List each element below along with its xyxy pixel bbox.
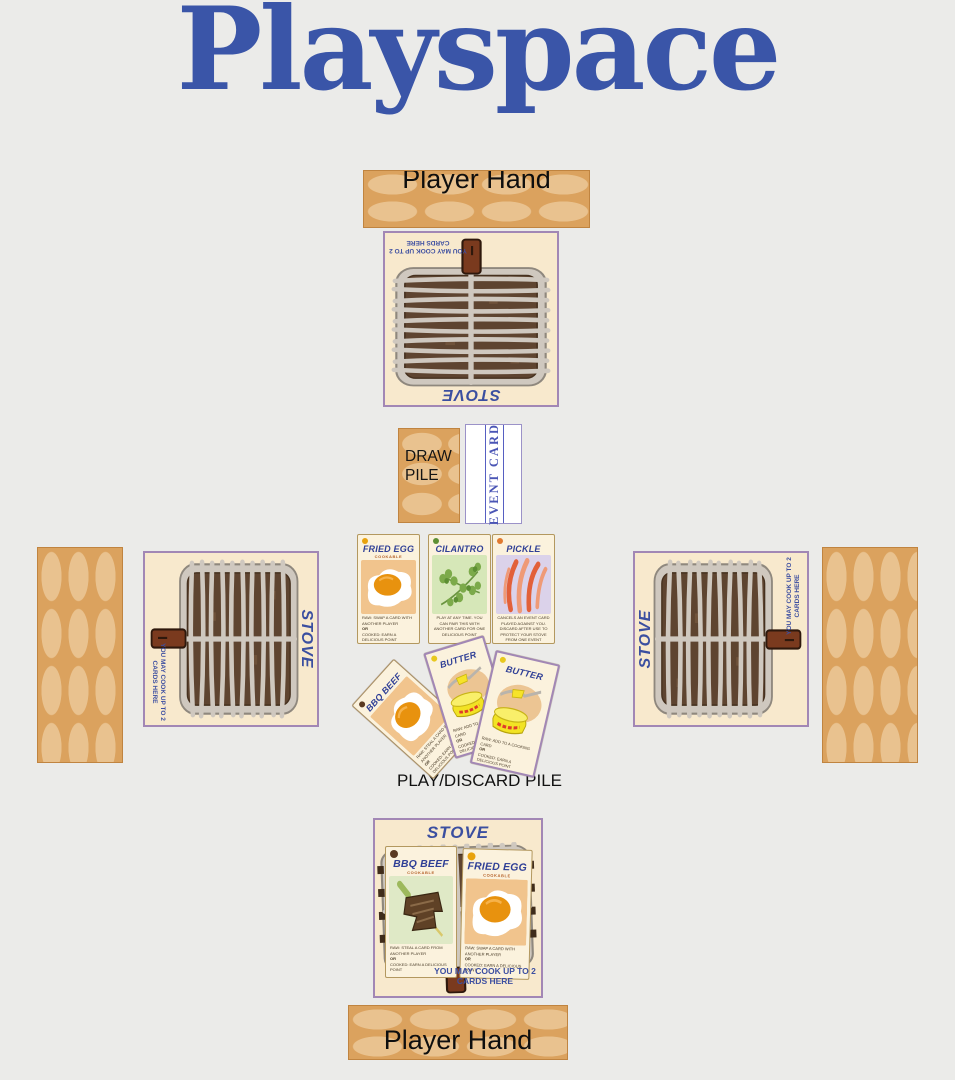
player-hand-top-label: Player Hand — [364, 170, 589, 195]
event-card-label: EVENT CARD — [487, 423, 502, 525]
card-fried-egg[interactable]: FRIED EGG COOKABLE RAW: SWAP A CARD WITH… — [357, 534, 420, 644]
stove-card-right: STOVE YOU MAY COOK UP TO 2 CARDS HERE — [633, 551, 809, 727]
stove-zone-left[interactable]: STOVE YOU MAY COOK UP TO 2 CARDS HERE — [143, 551, 319, 727]
fried-egg-illustration — [361, 560, 416, 614]
pickle-illustration — [496, 555, 551, 614]
grill-illustration — [649, 559, 805, 719]
beef-icon — [390, 850, 398, 858]
page-title: Playspace — [0, 0, 955, 116]
card-fried-egg[interactable]: FRIED EGG COOKABLE RAW: SWAP A CARD WITH… — [459, 848, 532, 980]
card-bbq-beef[interactable]: BBQ BEEF COOKABLE RAW: STEAL A CARD FROM… — [385, 846, 457, 978]
card-title: CILANTRO — [432, 544, 487, 554]
stove-card-left: STOVE YOU MAY COOK UP TO 2 CARDS HERE — [143, 551, 319, 727]
card-subtitle: COOKABLE — [361, 554, 416, 559]
player-hand-bottom[interactable]: Player Hand — [348, 1005, 568, 1060]
bbq-beef-illustration — [389, 876, 453, 944]
card-title: PICKLE — [496, 544, 551, 554]
discard-pile-label: PLAY/DISCARD PILE — [337, 771, 622, 791]
player-hand-right[interactable] — [822, 547, 918, 763]
player-hand-left[interactable] — [37, 547, 123, 763]
grill-illustration — [391, 235, 551, 391]
cook-note: YOU MAY COOK UP TO 2 CARDS HERE — [388, 238, 468, 254]
fried-egg-illustration — [464, 878, 528, 946]
card-subtitle: COOKABLE — [389, 870, 453, 875]
cook-note: YOU MAY COOK UP TO 2 CARDS HERE — [150, 642, 166, 722]
card-pickle[interactable]: PICKLE CANCELS AN EVENT CARD PLAYED AGAI… — [492, 534, 555, 644]
draw-pile-label: DRAW PILE — [405, 448, 452, 484]
egg-icon — [467, 852, 475, 860]
card-rules: RAW: SWAP A CARD WITH ANOTHER PLAYER OR … — [361, 615, 416, 641]
stove-zone-right[interactable]: STOVE YOU MAY COOK UP TO 2 CARDS HERE — [633, 551, 809, 727]
cook-note: YOU MAY COOK UP TO 2 CARDS HERE — [433, 966, 537, 987]
event-card-band: EVENT CARD — [485, 425, 504, 523]
cook-note: YOU MAY COOK UP TO 2 CARDS HERE — [786, 556, 802, 636]
stove-title: STOVE — [375, 823, 541, 843]
card-title: FRIED EGG — [361, 544, 416, 554]
butter-illustration — [482, 673, 551, 747]
play-discard-pile[interactable]: BBQ BEEF RAW: STEAL A CARD FROM ANOTHER … — [390, 650, 570, 775]
playspace-board: Playspace Player Hand STOVE YOU MAY COOK… — [0, 0, 955, 1080]
card-title: BBQ BEEF — [389, 858, 453, 870]
stove-zone-top[interactable]: STOVE YOU MAY COOK UP TO 2 CARDS HERE — [383, 231, 559, 407]
stove-card-top: STOVE YOU MAY COOK UP TO 2 CARDS HERE — [383, 231, 559, 407]
grill-illustration — [147, 559, 303, 719]
cilantro-illustration — [432, 555, 487, 614]
card-cilantro[interactable]: CILANTRO PLAY AT ANY TIME. YOU CAN PAIR … — [428, 534, 491, 644]
event-card[interactable]: EVENT CARD — [465, 424, 522, 524]
stove-zone-bottom[interactable]: STOVE BBQ BEEF COOKABLE RAW: STEAL A CAR… — [373, 818, 543, 998]
player-hand-bottom-label: Player Hand — [349, 1025, 567, 1056]
player-hand-top[interactable]: Player Hand — [363, 170, 590, 228]
draw-pile[interactable]: DRAW PILE — [398, 428, 460, 523]
card-rules: CANCELS AN EVENT CARD PLAYED AGAINST YOU… — [496, 615, 551, 641]
